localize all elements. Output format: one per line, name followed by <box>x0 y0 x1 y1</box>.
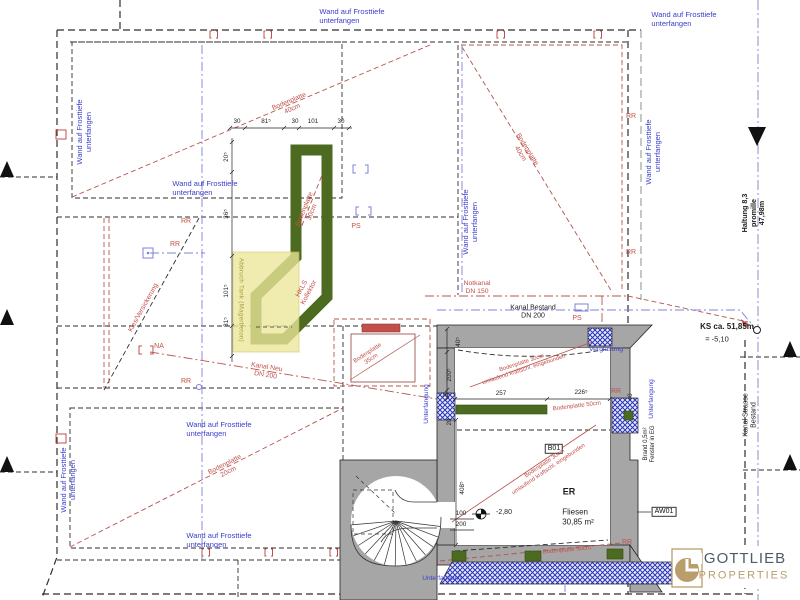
ks-point <box>754 327 761 334</box>
logo-mark <box>672 546 792 588</box>
kanal-arrowhead <box>741 319 750 327</box>
plan-drawing <box>0 0 800 600</box>
survey-triangles <box>0 127 797 472</box>
shaft-structure <box>334 319 430 386</box>
green-plate-bar <box>456 405 547 414</box>
tank-demolition-area <box>233 252 299 352</box>
floor-plan-canvas: Wand auf Frosttiefe unterfangen Wand auf… <box>0 0 800 600</box>
